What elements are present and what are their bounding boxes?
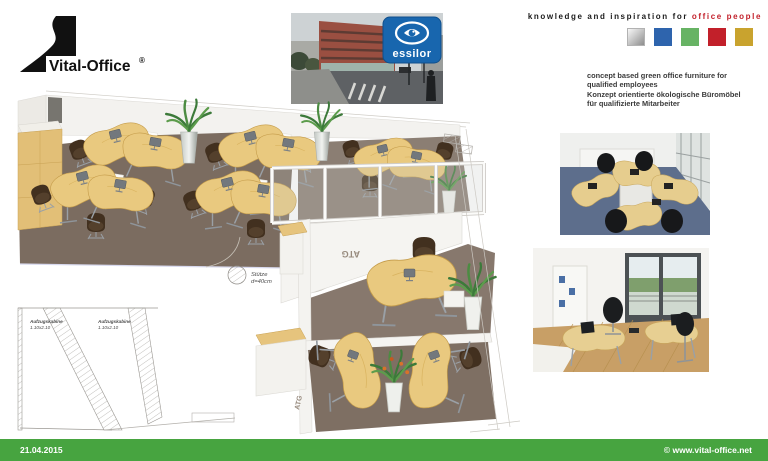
elevator-floorplan: Aufzugskabine 1.10x2.10 Aufzugskabine 1.…: [18, 308, 235, 430]
footer-bar: 21.04.2015 © www.vital-office.net: [0, 439, 768, 461]
slide: Vital-Office ® knowledge and inspiration…: [0, 0, 768, 461]
desc-line-4: für qualifizierte Mitarbeiter: [587, 99, 762, 108]
tagline: knowledge and inspiration for office peo…: [528, 12, 762, 46]
elevator-size: 1.10x2.10: [98, 325, 119, 330]
color-square-4: [735, 28, 753, 46]
column-size: d=40cm: [251, 279, 272, 285]
reference-photo-executive-office: [533, 248, 709, 377]
cabinet-left: [18, 121, 62, 230]
footer-date: 21.04.2015: [20, 439, 63, 461]
bottom-room-cabinet: [256, 328, 306, 396]
desc-line-2: qualified employees: [587, 80, 762, 89]
essilor-logo: essilor: [383, 17, 441, 63]
tagline-black: knowledge and inspiration for: [528, 12, 688, 21]
tagline-text: knowledge and inspiration for office peo…: [528, 12, 762, 21]
column-annotation: Stütze d=40cm: [228, 266, 272, 285]
elevator-label: Aufzugskabine: [29, 319, 63, 324]
color-square-2: [681, 28, 699, 46]
color-squares: [528, 28, 762, 46]
vital-office-logo: Vital-Office ®: [18, 14, 158, 85]
essilor-wordmark: essilor: [393, 48, 432, 60]
glass-ground-floor: [321, 63, 394, 72]
elevator-size: 1.10x2.10: [30, 325, 51, 330]
desc-line-1: concept based green office furniture for: [587, 71, 762, 80]
logo-registered-mark: ®: [139, 56, 145, 65]
concept-description: concept based green office furniture for…: [587, 71, 762, 108]
phone: [629, 328, 639, 333]
sideboard: [444, 291, 464, 307]
column-label: Stütze: [251, 272, 268, 278]
floorplan-rendering: ATG ATG Stüt: [0, 85, 530, 440]
logo-wordmark: Vital-Office: [49, 58, 131, 75]
color-square-0: [627, 28, 645, 46]
elevator-label: Aufzugskabine: [97, 319, 131, 324]
room-code-label: ATG: [342, 249, 360, 259]
cabinet: [553, 266, 587, 328]
reference-photo-team-office: [560, 133, 710, 240]
doorway: [48, 97, 62, 123]
color-square-3: [708, 28, 726, 46]
pedestrian-head: [428, 70, 434, 76]
desc-line-3: Konzept orientierte ökologische Büromöbe…: [587, 90, 762, 99]
color-square-1: [654, 28, 672, 46]
tagline-red: office people: [692, 12, 762, 21]
footer-url[interactable]: © www.vital-office.net: [664, 439, 752, 461]
corridor-cabinet: [278, 222, 307, 274]
